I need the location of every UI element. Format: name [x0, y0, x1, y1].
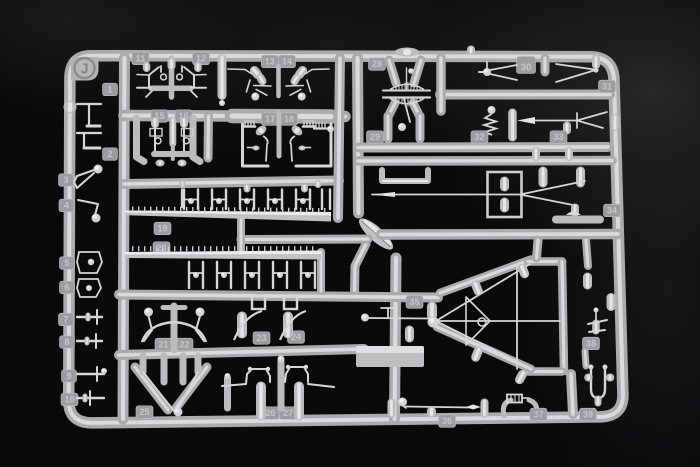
svg-text:2: 2: [107, 149, 112, 159]
svg-text:6: 6: [64, 283, 69, 293]
svg-text:7: 7: [63, 315, 68, 325]
svg-text:26: 26: [265, 408, 275, 418]
svg-text:10: 10: [64, 395, 74, 405]
svg-text:J: J: [80, 62, 88, 78]
svg-text:4: 4: [64, 201, 69, 211]
svg-text:8: 8: [64, 337, 69, 347]
svg-text:31: 31: [602, 82, 612, 92]
svg-text:5: 5: [64, 258, 69, 268]
svg-text:38: 38: [586, 339, 596, 349]
svg-text:30: 30: [520, 62, 532, 73]
svg-text:27: 27: [283, 408, 293, 418]
svg-text:3: 3: [63, 175, 68, 185]
svg-text:22: 22: [179, 340, 189, 350]
svg-text:34: 34: [607, 206, 617, 216]
svg-text:23: 23: [256, 333, 266, 343]
svg-text:25: 25: [139, 407, 149, 417]
svg-text:37: 37: [533, 410, 543, 420]
svg-text:9: 9: [66, 371, 71, 381]
svg-text:11: 11: [136, 54, 146, 64]
svg-text:32: 32: [474, 132, 484, 142]
svg-text:39: 39: [583, 410, 593, 420]
svg-text:28: 28: [372, 59, 382, 69]
svg-text:36: 36: [442, 416, 452, 426]
svg-text:1: 1: [107, 85, 112, 95]
svg-text:17: 17: [265, 114, 275, 124]
svg-text:35: 35: [409, 297, 419, 307]
svg-text:13: 13: [265, 57, 275, 67]
svg-text:19: 19: [157, 224, 167, 234]
svg-text:18: 18: [284, 114, 294, 124]
svg-text:29: 29: [370, 132, 380, 142]
svg-text:33: 33: [553, 132, 563, 142]
svg-text:14: 14: [282, 57, 292, 67]
svg-text:21: 21: [158, 340, 168, 350]
